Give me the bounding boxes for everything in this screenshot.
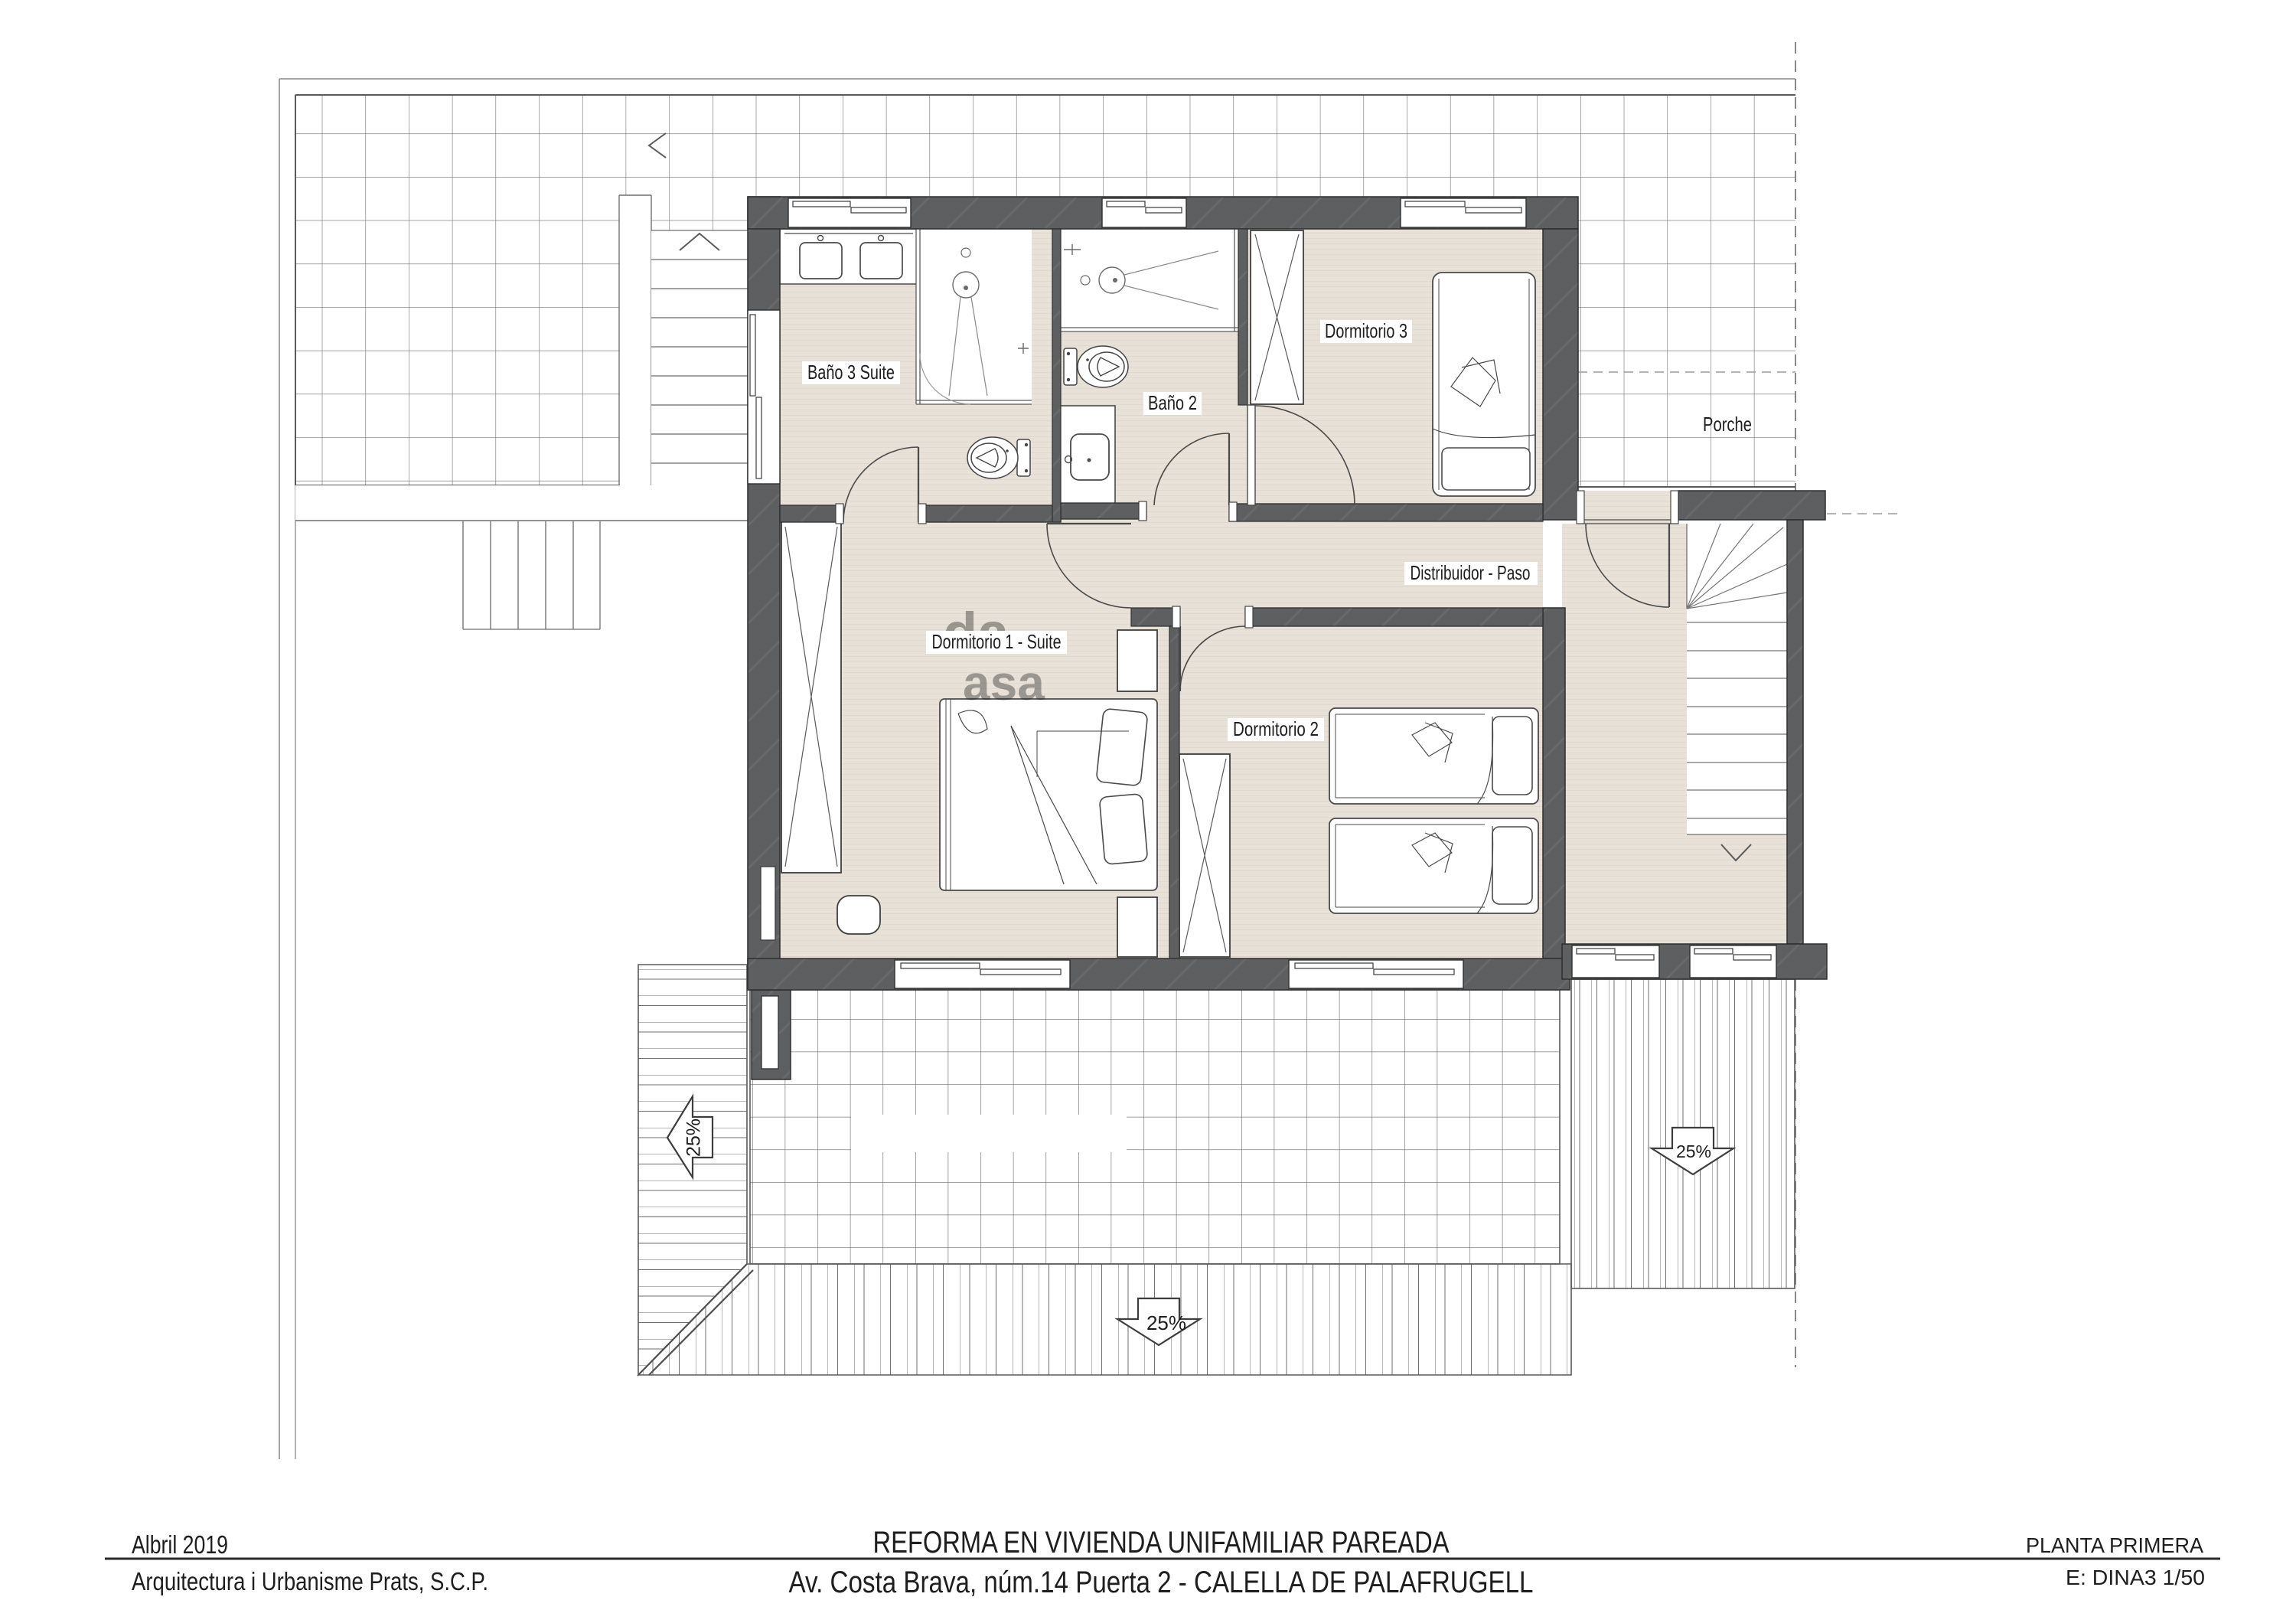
svg-text:Distribuidor - Paso: Distribuidor - Paso (1411, 561, 1531, 584)
svg-text:Dormitorio 1 - Suite: Dormitorio 1 - Suite (932, 630, 1062, 653)
svg-text:REFORMA EN VIVIENDA UNIFAMILIA: REFORMA EN VIVIENDA UNIFAMILIAR PAREADA (873, 1526, 1450, 1559)
svg-text:25%: 25% (683, 1118, 705, 1157)
svg-text:Albril 2019: Albril 2019 (132, 1530, 228, 1559)
svg-text:Baño 3 Suite: Baño 3 Suite (807, 361, 895, 384)
svg-text:PLANTA PRIMERA: PLANTA PRIMERA (2026, 1533, 2203, 1557)
svg-text:Dormitorio 3: Dormitorio 3 (1325, 319, 1407, 342)
svg-text:25%: 25% (1146, 1311, 1186, 1334)
svg-text:Av. Costa Brava, núm.14 Puerta: Av. Costa Brava, núm.14 Puerta 2 - CALEL… (789, 1566, 1534, 1599)
svg-text:Porche: Porche (1703, 413, 1752, 436)
svg-text:Baño 2: Baño 2 (1148, 391, 1197, 414)
svg-text:Dormitorio 2: Dormitorio 2 (1233, 717, 1319, 740)
svg-text:asa: asa (963, 655, 1045, 710)
svg-text:25%: 25% (1676, 1141, 1711, 1161)
svg-text:E: DINA3 1/50: E: DINA3 1/50 (2066, 1566, 2205, 1589)
svg-text:Arquitectura i Urbanisme Prats: Arquitectura i Urbanisme Prats, S.C.P. (132, 1567, 488, 1595)
